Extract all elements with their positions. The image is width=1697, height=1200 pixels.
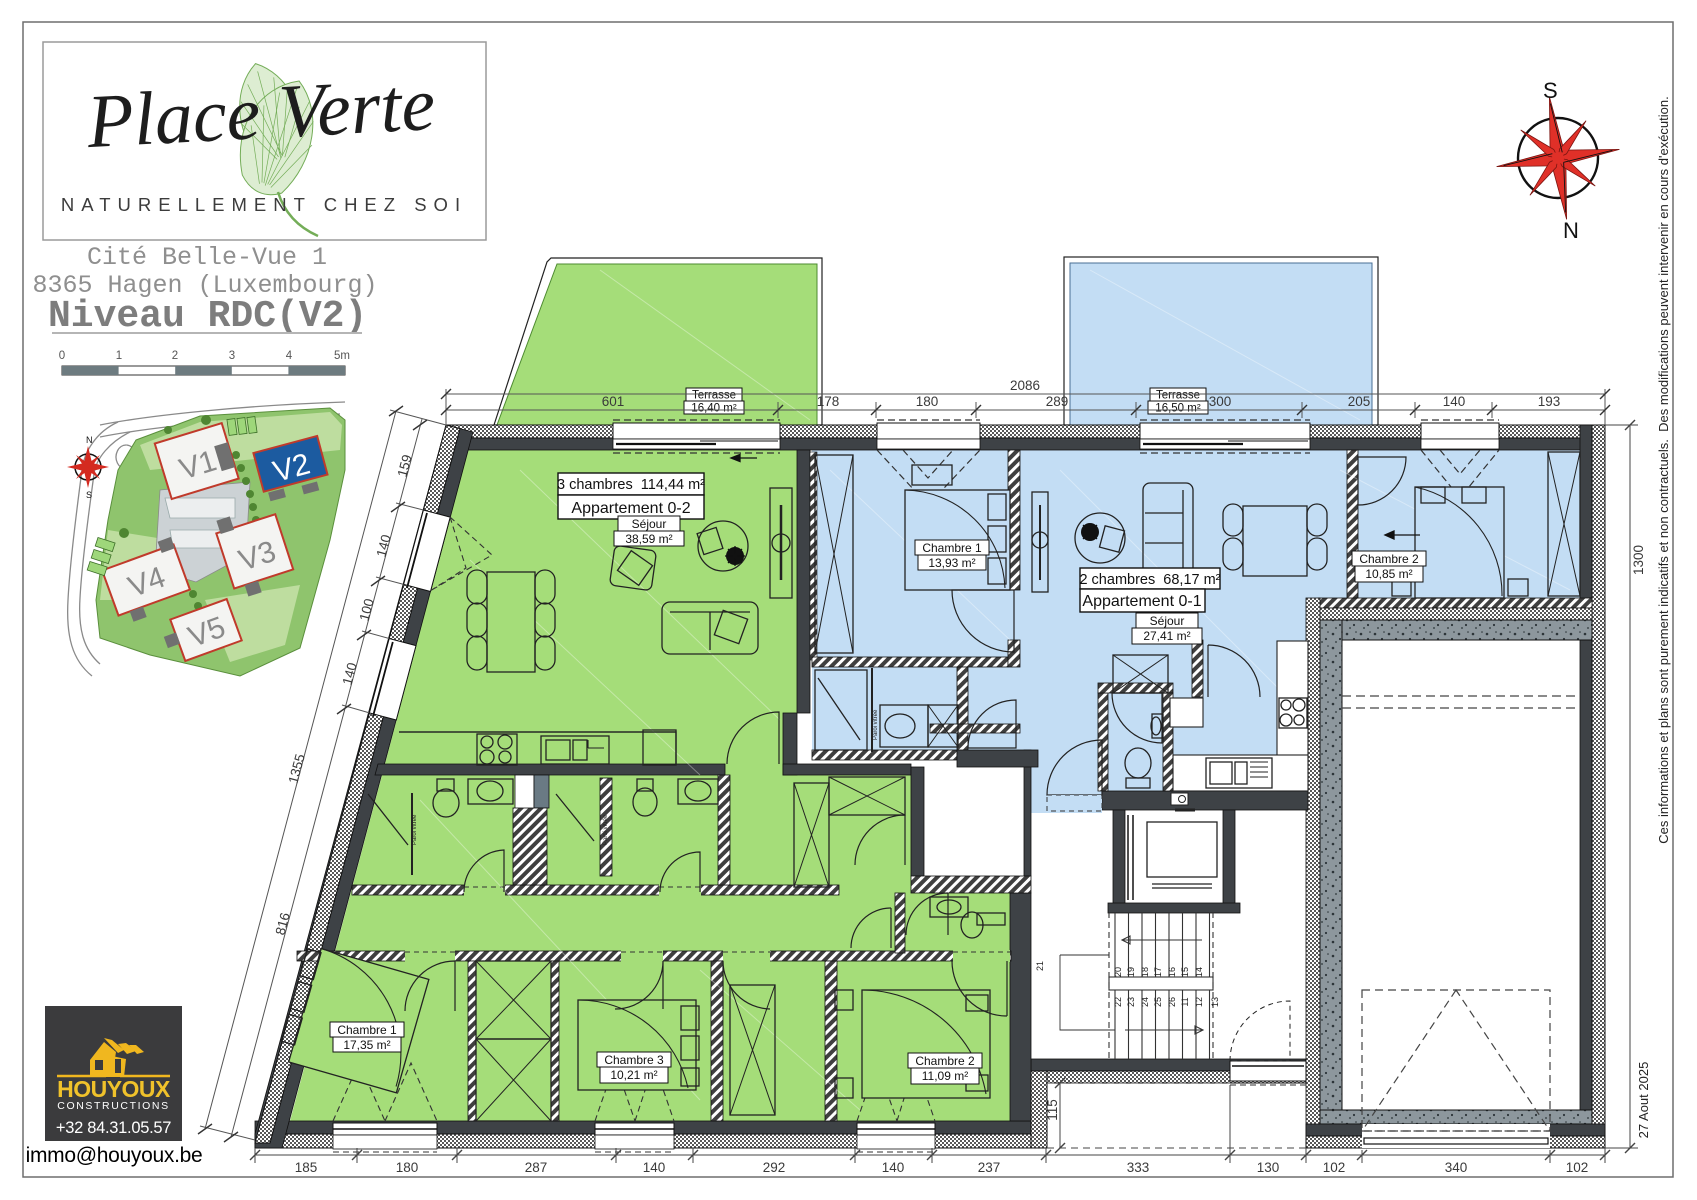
svg-text:38,59 m²: 38,59 m²: [625, 532, 672, 546]
svg-text:287: 287: [525, 1160, 548, 1175]
svg-text:Niveau RDC(V2): Niveau RDC(V2): [48, 295, 367, 338]
svg-text:16,50 m²: 16,50 m²: [1155, 403, 1201, 415]
svg-text:HOUYOUX: HOUYOUX: [57, 1076, 171, 1102]
svg-text:102: 102: [1566, 1160, 1589, 1175]
svg-text:Séjour: Séjour: [632, 517, 667, 531]
svg-text:S: S: [86, 490, 92, 500]
svg-text:immo@houyoux.be: immo@houyoux.be: [26, 1144, 203, 1167]
svg-text:5m: 5m: [334, 350, 350, 362]
svg-text:16: 16: [1167, 967, 1177, 977]
svg-text:2 chambres 68,17 m²: 2 chambres 68,17 m²: [1079, 572, 1220, 588]
svg-text:130: 130: [1257, 1160, 1280, 1175]
svg-text:17: 17: [1153, 967, 1163, 977]
svg-text:Appartement 0-2: Appartement 0-2: [571, 500, 690, 517]
svg-text:300: 300: [1209, 394, 1232, 409]
svg-text:0: 0: [59, 350, 65, 362]
svg-text:2: 2: [172, 350, 178, 362]
svg-text:11: 11: [1180, 997, 1190, 1006]
svg-text:CONSTRUCTIONS: CONSTRUCTIONS: [57, 1100, 169, 1112]
svg-text:193: 193: [1538, 394, 1561, 409]
svg-text:Paroi vitrée: Paroi vitrée: [873, 709, 879, 740]
svg-text:Appartement 0-1: Appartement 0-1: [1082, 593, 1201, 610]
svg-text:333: 333: [1127, 1160, 1150, 1175]
svg-text:Séjour: Séjour: [1150, 614, 1185, 628]
svg-text:2086: 2086: [1010, 378, 1040, 393]
svg-text:14: 14: [1194, 967, 1204, 977]
svg-text:15: 15: [1180, 967, 1190, 977]
svg-text:22: 22: [1113, 997, 1123, 1007]
svg-text:24: 24: [1140, 997, 1150, 1007]
svg-text:185: 185: [295, 1160, 318, 1175]
svg-text:1300: 1300: [1631, 545, 1646, 575]
svg-text:180: 180: [916, 394, 939, 409]
svg-text:Ces informations et plans sont: Ces informations et plans sont purement …: [1656, 96, 1671, 844]
svg-text:205: 205: [1348, 394, 1371, 409]
svg-text:3: 3: [229, 350, 235, 362]
svg-text:N: N: [86, 435, 93, 445]
svg-text:292: 292: [763, 1160, 786, 1175]
svg-text:115: 115: [1045, 1099, 1060, 1121]
svg-text:20: 20: [1113, 967, 1123, 977]
svg-text:Chambre 2: Chambre 2: [915, 1054, 975, 1068]
svg-text:Paroi vitrée: Paroi vitrée: [412, 814, 418, 845]
svg-text:27 Aout 2025: 27 Aout 2025: [1636, 1062, 1651, 1139]
svg-text:178: 178: [817, 394, 840, 409]
svg-text:27,41 m²: 27,41 m²: [1143, 629, 1190, 643]
svg-text:340: 340: [1445, 1160, 1468, 1175]
svg-text:Chambre 1: Chambre 1: [337, 1023, 397, 1037]
svg-text:21: 21: [1035, 961, 1045, 971]
svg-text:Chambre 3: Chambre 3: [604, 1053, 664, 1067]
svg-text:10,85 m²: 10,85 m²: [1365, 567, 1412, 581]
svg-text:Cité Belle-Vue 1: Cité Belle-Vue 1: [87, 243, 327, 272]
svg-text:Terrasse: Terrasse: [1156, 390, 1200, 402]
svg-text:23: 23: [1126, 997, 1136, 1007]
svg-text:Terrasse: Terrasse: [692, 390, 736, 402]
svg-text:16,40 m²: 16,40 m²: [691, 403, 737, 415]
svg-text:S: S: [1543, 78, 1558, 103]
svg-text:13,93 m²: 13,93 m²: [928, 556, 975, 570]
svg-text:289: 289: [1046, 394, 1069, 409]
svg-text:17,35 m²: 17,35 m²: [343, 1038, 390, 1052]
svg-text:3 chambres 114,44 m²: 3 chambres 114,44 m²: [557, 477, 705, 493]
svg-text:26: 26: [1167, 997, 1177, 1007]
svg-text:Chambre 1: Chambre 1: [922, 541, 982, 555]
svg-text:140: 140: [882, 1160, 905, 1175]
svg-text:Chambre 2: Chambre 2: [1359, 552, 1419, 566]
svg-text:+32 84.31.05.57: +32 84.31.05.57: [56, 1119, 171, 1137]
svg-text:N: N: [1563, 218, 1579, 243]
svg-text:10,21 m²: 10,21 m²: [610, 1068, 657, 1082]
svg-text:1: 1: [116, 350, 122, 362]
svg-text:11,09 m²: 11,09 m²: [922, 1069, 968, 1083]
svg-text:18: 18: [1140, 967, 1150, 977]
svg-text:NATURELLEMENT CHEZ SOI: NATURELLEMENT CHEZ SOI: [61, 194, 467, 215]
svg-text:Paroi vitrée: Paroi vitrée: [603, 814, 609, 845]
svg-text:180: 180: [396, 1160, 419, 1175]
svg-text:12: 12: [1194, 997, 1204, 1007]
svg-text:19: 19: [1126, 967, 1136, 977]
svg-text:140: 140: [1443, 394, 1466, 409]
svg-text:601: 601: [602, 394, 625, 409]
svg-text:25: 25: [1153, 997, 1163, 1007]
svg-text:4: 4: [286, 350, 293, 362]
svg-text:237: 237: [978, 1160, 1001, 1175]
svg-text:102: 102: [1323, 1160, 1346, 1175]
svg-text:13: 13: [1210, 997, 1220, 1007]
svg-text:140: 140: [643, 1160, 666, 1175]
